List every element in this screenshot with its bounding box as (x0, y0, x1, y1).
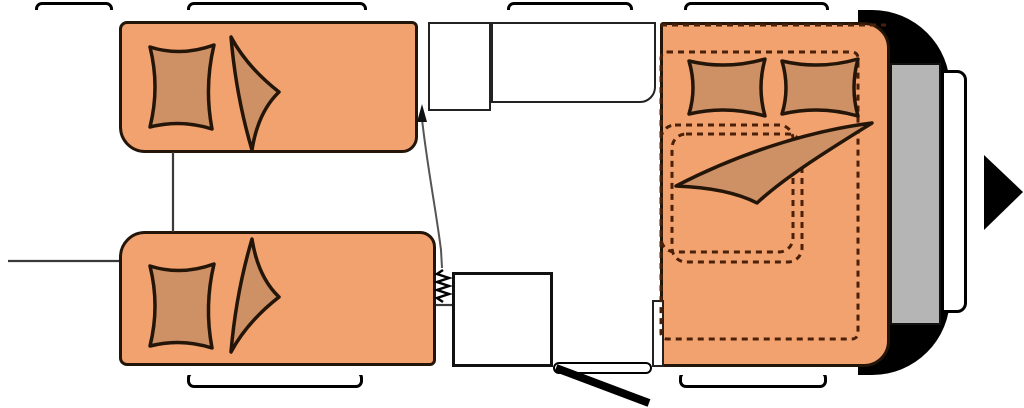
entry-door-open-line (556, 368, 649, 403)
caravan-floorplan (0, 0, 1024, 408)
direction-arrow-icon (984, 155, 1023, 230)
blanket-top-bed (231, 37, 279, 150)
pillow-bottom-bed (150, 264, 214, 348)
pillow-front-bed-left (689, 59, 765, 116)
blanket-bottom-bed (231, 239, 279, 352)
pillow-front-bed-right (782, 59, 858, 116)
pillow-top-bed (150, 45, 214, 129)
door-swing-arrowhead-icon (417, 104, 427, 122)
door-swing-line (422, 119, 442, 268)
floorplan-linework (0, 0, 1024, 408)
concertina-door-icon (437, 270, 449, 302)
